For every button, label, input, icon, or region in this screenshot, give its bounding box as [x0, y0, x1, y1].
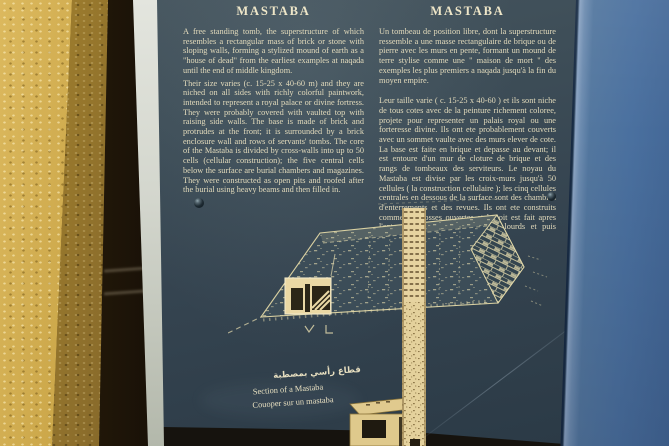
survey-mark-l: [326, 325, 333, 333]
screw-icon: [194, 198, 204, 208]
burial-chamber-opening: [362, 420, 386, 438]
shaft-upper: [402, 208, 426, 302]
construction-line: [378, 199, 495, 204]
english-paragraph-2: Their size varies (c. 15-25 x 40-60 m) a…: [183, 79, 364, 195]
shaft-right-shade: [424, 208, 426, 446]
shaft-lower: [402, 302, 426, 446]
french-paragraph-1: Un tombeau de position libre, dont la su…: [379, 27, 556, 85]
ground-line: [228, 317, 261, 333]
enclosure-dashes: [525, 256, 547, 306]
side-panel: [560, 0, 669, 446]
english-paragraph-1: A free standing tomb, the superstructure…: [183, 27, 364, 76]
museum-sign-photo: MASTABA A free standing tomb, the supers…: [0, 0, 669, 446]
side-panel-shade: [560, 0, 669, 446]
shaft-left-shade: [402, 208, 404, 446]
english-title: MASTABA: [183, 4, 364, 19]
french-title: MASTABA: [379, 4, 556, 19]
mastaba-section-diagram: [228, 196, 578, 446]
screw-icon: [547, 192, 556, 201]
english-column: MASTABA A free standing tomb, the supers…: [183, 4, 364, 195]
survey-mark-v: [305, 325, 314, 332]
serdab-niche: [291, 288, 303, 310]
shaft-foot-opening: [410, 439, 420, 446]
serdab-divider: [305, 284, 310, 312]
